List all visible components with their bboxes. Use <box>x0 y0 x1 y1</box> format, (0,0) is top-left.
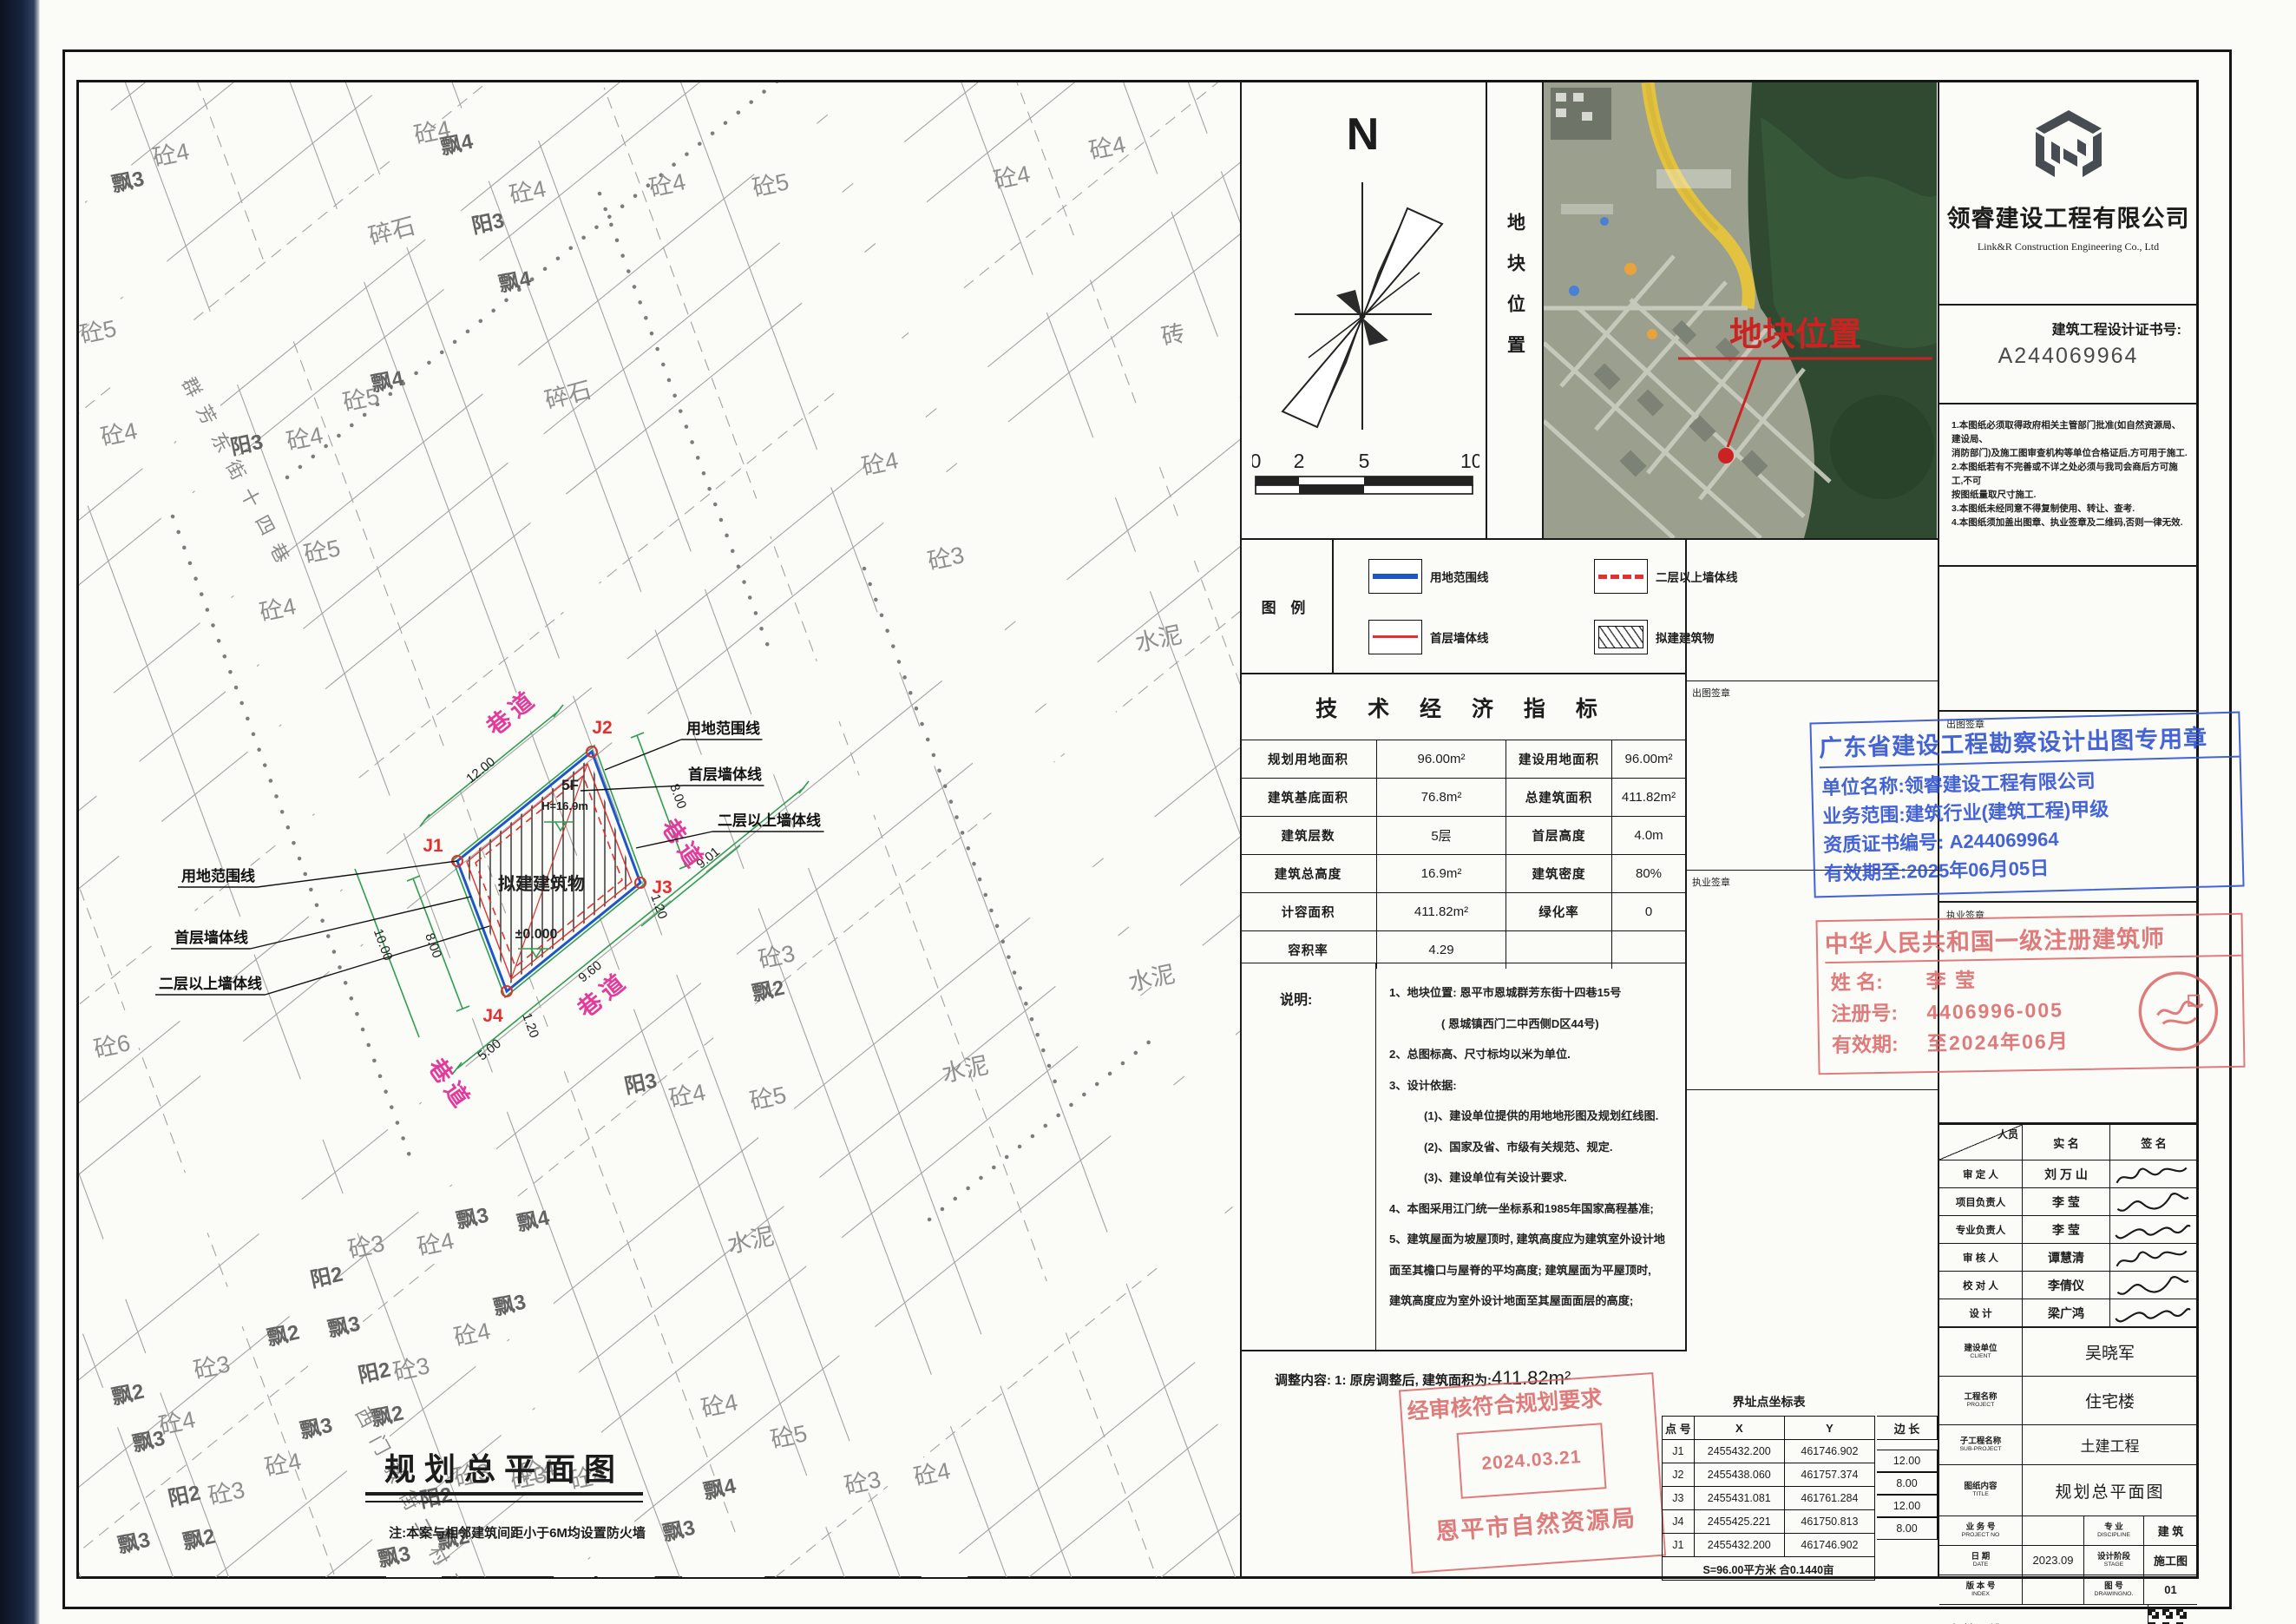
legend-item: 首层墙体线 <box>1368 620 1489 654</box>
callout-label: 二层以上墙体线 <box>718 812 821 829</box>
disclaimer-line: 按图纸量取尺寸施工. <box>1952 488 2188 502</box>
coord-table-title: 界址点坐标表 <box>1662 1393 1876 1410</box>
indicator-value: 411.82m² <box>1612 779 1685 816</box>
coord-footer: S=96.00平方米 合0.1440亩 <box>1663 1557 1874 1580</box>
indicator-label: 建筑基底面积 <box>1240 779 1377 816</box>
indicator-value: 96.00m² <box>1377 740 1506 778</box>
proposed-building-label: 拟建建筑物 <box>498 873 585 894</box>
parcel-label: 飘3 <box>130 1427 167 1456</box>
boundary-point-label: J1 <box>423 836 443 856</box>
coord-cell: 2455432.200 <box>1695 1440 1785 1463</box>
coord-header: X <box>1695 1417 1785 1439</box>
personnel-role: 审 核 人 <box>1939 1244 2023 1271</box>
parcel-label: 飘4 <box>515 1206 552 1235</box>
parcel-label: 砼4 <box>699 1389 739 1422</box>
legend-title: 图 例 <box>1240 540 1334 673</box>
dimension-label: 5.00 <box>475 1036 503 1064</box>
parcel-label: 砼4 <box>646 168 687 201</box>
callout-label: 二层以上墙体线 <box>159 975 262 992</box>
parcel-label: 飘3 <box>298 1414 334 1443</box>
divider-map-middle <box>1240 80 1242 1579</box>
indicator-label: 绿化率 <box>1506 893 1612 930</box>
edge-length-cell: 12.00 <box>1877 1450 1938 1472</box>
coord-header: 点 号 <box>1663 1417 1695 1439</box>
legend: 图 例 用地范围线二层以上墙体线首层墙体线拟建建筑物 <box>1240 538 1685 674</box>
parcel-label: 阳2 <box>166 1482 202 1511</box>
parcel-label: 砼4 <box>1086 131 1127 164</box>
practice-seal-cell-label: 执业签章 <box>1692 875 1730 889</box>
indicators-table: 规划用地面积96.00m²建设用地面积96.00m²建筑基底面积76.8m²总建… <box>1240 740 1685 963</box>
callout-label: 首层墙体线 <box>174 929 248 946</box>
signature <box>2110 1299 2197 1326</box>
disclaimer-notes: 1.本图纸必须取得政府相关主管部门批准(如自然资源局、建设局、消防部门)及施工图… <box>1939 404 2197 567</box>
legend-item-label: 首层墙体线 <box>1430 628 1489 646</box>
parcel-label: 飘2 <box>180 1525 217 1555</box>
company-name-en: Link&R Construction Engineering Co., Ltd <box>1939 240 2197 253</box>
parcel-label: 砼4 <box>666 1079 707 1112</box>
map-title-text: 规划总平面图 <box>384 1452 624 1487</box>
height-label: H=16.9m <box>541 799 588 812</box>
location-strip: 地块位置 <box>1486 82 1544 538</box>
indicator-value: 80% <box>1612 855 1685 892</box>
svg-text:5: 5 <box>1359 450 1370 472</box>
indicator-label: 建筑层数 <box>1240 817 1377 854</box>
coord-cell: 2455432.200 <box>1695 1534 1785 1556</box>
callout-label: 用地范围线 <box>686 720 760 737</box>
subproject-row: 子工程名称 SUB-PROJECT 土建工程 <box>1939 1424 2197 1464</box>
personnel-name: 刘 万 山 <box>2023 1160 2110 1187</box>
note-line: 1、地块位置: 恩平市恩城群芳东街十四巷15号 <box>1389 984 1682 1002</box>
edge-length-cell: 8.00 <box>1877 1517 1938 1540</box>
indicator-label: 规划用地面积 <box>1240 740 1377 778</box>
indicator-label: 建筑总高度 <box>1240 855 1377 892</box>
note-line: (1)、建设单位提供的用地地形图及规划红线图. <box>1389 1108 1682 1125</box>
aerial-site-label: 地块位置 <box>1729 317 1861 353</box>
plot-seal-cell-label: 出图签章 <box>1692 686 1730 700</box>
certificate-block: 建筑工程设计证书号: A244069964 <box>1939 318 2197 404</box>
coord-cell: J4 <box>1663 1510 1695 1533</box>
parcel-label: 砼4 <box>150 138 191 171</box>
parcel-label: 水泥 <box>940 1052 991 1088</box>
meta-value: 01 <box>2144 1575 2197 1604</box>
north-label: N <box>1240 108 1486 161</box>
svg-text:2: 2 <box>1294 450 1305 472</box>
location-strip-label: 地块位置 <box>1502 213 1528 376</box>
coord-table: 点 号XYJ12455432.200461746.902J22455438.06… <box>1662 1416 1875 1581</box>
red-stamp-value: 至2024年06月 <box>1927 1025 2070 1059</box>
indicator-value: 5层 <box>1377 817 1506 854</box>
cert-number: A244069964 <box>1939 344 2197 369</box>
svg-text:10M: 10M <box>1460 450 1479 472</box>
bottom-band: 调整内容: 1: 原房调整后, 建筑面积为:411.82m² 经审核符合规划要求… <box>1240 1351 1938 1577</box>
callout-label: 用地范围线 <box>181 867 255 884</box>
signature <box>2110 1188 2197 1215</box>
indicator-value: 96.00m² <box>1612 740 1685 778</box>
red-architect-stamp: 中华人民共和国一级注册建筑师 姓 名:李 莹注册号:4406996-005有效期… <box>1815 913 2245 1075</box>
parcel-label: 砼4 <box>991 161 1032 194</box>
boundary-point-label: J2 <box>592 718 612 738</box>
red-stamp-value: 4406996-005 <box>1926 994 2063 1028</box>
architect-seal-icon <box>2136 969 2221 1054</box>
parcel-label: 碎石 <box>542 377 594 414</box>
parcel-label: 砼3 <box>756 940 797 973</box>
coord-cell: J1 <box>1663 1534 1695 1556</box>
note-line: 3、设计依据: <box>1389 1077 1682 1095</box>
indicator-label: 总建筑面积 <box>1506 779 1612 816</box>
parcel-label: 飘4 <box>369 366 406 396</box>
notes-label: 说明: <box>1280 988 1375 1009</box>
parcel-label: 砼4 <box>507 175 548 208</box>
coord-cell: 2455431.081 <box>1695 1487 1785 1509</box>
note-line: 4、本图采用江门统一坐标系和1985年国家高程基准; <box>1389 1200 1682 1218</box>
client-row: 建设单位 CLIENT 吴晓军 <box>1939 1328 2197 1376</box>
coord-cell: 2455425.221 <box>1695 1510 1785 1533</box>
signature <box>2110 1272 2197 1299</box>
drawing-sheet: 砼4飘3砼4飘4砼4阳3飘4碎石砼5飘4砼4阳3碎石砼4砼5砼4砼4砖砼4砼3水… <box>0 0 2296 1624</box>
callout-label: 首层墙体线 <box>688 766 762 783</box>
legend-item: 用地范围线 <box>1368 559 1489 594</box>
note-line: (2)、国家及省、市级有关规范、规定. <box>1389 1139 1682 1156</box>
personnel-role: 设 计 <box>1939 1299 2023 1326</box>
project-row: 工程名称 PROJECT 住宅楼 <box>1939 1376 2197 1424</box>
coord-cell: 2455438.060 <box>1695 1463 1785 1486</box>
map-note-text: 注:本案与相邻建筑间距小于6M均设置防火墙 <box>389 1525 646 1541</box>
red-stamp-value: 李 莹 <box>1925 964 1977 996</box>
edge-length-cell: 8.00 <box>1877 1472 1938 1495</box>
disclaimer-line: 1.本图纸必须取得政府相关主管部门批准(如自然资源局、建设局、 <box>1952 418 2188 446</box>
boundary-point-label: J4 <box>482 1006 503 1026</box>
legend-item-label: 用地范围线 <box>1430 568 1489 585</box>
aerial-site-marker <box>1718 448 1734 464</box>
indicator-label: 建设用地面积 <box>1506 740 1612 778</box>
scan-edge <box>0 0 40 1624</box>
cert-label: 建筑工程设计证书号: <box>1939 318 2181 339</box>
indicator-label: 建筑密度 <box>1506 855 1612 892</box>
note-line: 5、建筑屋面为坡屋顶时, 建筑高度应为建筑室外设计地 <box>1389 1231 1682 1248</box>
indicator-value: 411.82m² <box>1377 893 1506 930</box>
personnel-name: 李倩仪 <box>2023 1272 2110 1299</box>
svg-text:0: 0 <box>1252 450 1261 472</box>
signature <box>2110 1244 2197 1271</box>
north-box: N 02510M <box>1240 82 1486 538</box>
personnel-name: 谭慧清 <box>2023 1244 2110 1271</box>
compass-rose-icon <box>1280 174 1445 434</box>
drawing-meta-rows: 业 务 号PROJECT NO专 业DISCIPLINE建 筑日 期DATE20… <box>1939 1516 2197 1604</box>
meta-value <box>2023 1516 2084 1545</box>
coord-cell: 461761.284 <box>1785 1487 1874 1509</box>
personnel-role: 项目负责人 <box>1939 1188 2023 1215</box>
site-plan-map: 砼4飘3砼4飘4砼4阳3飘4碎石砼5飘4砼4阳3碎石砼4砼5砼4砼4砖砼4砼3水… <box>79 82 1240 1577</box>
signature <box>2110 1160 2197 1187</box>
personnel-name: 李 莹 <box>2023 1188 2110 1215</box>
parcel-label: 砼5 <box>768 1420 809 1453</box>
coord-cell: J1 <box>1663 1440 1695 1463</box>
edge-length-column: 边 长12.008.0012.008.00 <box>1877 1416 1938 1440</box>
floors-label: 5F <box>561 777 579 793</box>
company-name: 领睿建设工程有限公司 <box>1939 200 2197 233</box>
parcel-label: 砼5 <box>301 535 342 568</box>
notes-section: 说明: 1、地块位置: 恩平市恩城群芳东街十四巷15号( 恩城镇西门二中西侧D区… <box>1240 963 1685 1351</box>
parcel-label: 阳3 <box>622 1069 659 1099</box>
note-line: (3)、建设单位有关设计要求. <box>1389 1169 1682 1187</box>
parcel-label: 飘2 <box>265 1321 301 1351</box>
meta-value: 施工图 <box>2144 1546 2197 1575</box>
note-line: 建筑高度应为室外设计地面至其屋面面层的高度; <box>1389 1292 1682 1310</box>
qr-row: 归档二维码: <box>1939 1604 2197 1624</box>
parcel-label: 阳3 <box>469 209 506 239</box>
indicator-value: 0 <box>1612 893 1685 930</box>
indicators-title: 技 术 经 济 指 标 <box>1240 674 1685 740</box>
indicator-value: 4.0m <box>1612 817 1685 854</box>
coord-cell: 461750.813 <box>1785 1510 1874 1533</box>
coord-header: Y <box>1785 1417 1874 1439</box>
parcel-label: 水泥 <box>725 1223 777 1259</box>
blue-company-stamp: 广东省建设工程勘察设计出图专用章 单位名称:领睿建设工程有限公司业务范围:建筑行… <box>1809 712 2244 898</box>
indicator-value: 76.8m² <box>1377 779 1506 816</box>
note-line: 2、总图标高、尺寸标均以米为单位. <box>1389 1046 1682 1063</box>
project-name: 住宅楼 <box>2023 1377 2197 1424</box>
coord-cell: 461746.902 <box>1785 1440 1874 1463</box>
parcel-label: 砼3 <box>206 1476 246 1509</box>
indicator-label: 计容面积 <box>1240 893 1377 930</box>
parcel-label: 砼4 <box>284 422 325 455</box>
archive-qr-code <box>2148 1608 2190 1624</box>
approval-date: 2024.03.21 <box>1457 1423 1607 1499</box>
indicator-value: 16.9m² <box>1377 855 1506 892</box>
drawing-title: 规划总平面图 <box>2023 1465 2197 1516</box>
personnel-table: 人员实 名签 名审 定 人刘 万 山项目负责人李 莹专业负责人李 莹审 核 人谭… <box>1939 1124 2197 1328</box>
parcel-label: 飘3 <box>660 1516 697 1546</box>
client-name: 吴晓军 <box>2023 1328 2197 1376</box>
parcel-label: 飘4 <box>701 1474 738 1503</box>
empty-cell <box>1939 567 2197 712</box>
personnel-role: 专业负责人 <box>1939 1216 2023 1243</box>
level-label: ±0.000 <box>515 927 558 942</box>
approval-agency: 恩平市自然资源局 <box>1409 1497 1663 1548</box>
note-line: 面至其檐口与屋脊的平均高度; 建筑屋面为平屋顶时, <box>1389 1262 1682 1279</box>
signature <box>2110 1216 2197 1243</box>
parcel-label: 飘3 <box>115 1529 152 1558</box>
meta-value: 建 筑 <box>2144 1516 2197 1545</box>
coord-cell: 461746.902 <box>1785 1534 1874 1556</box>
company-logo-icon <box>2029 107 2109 187</box>
personnel-name: 李 莹 <box>2023 1216 2110 1243</box>
parcel-label: 飘2 <box>750 976 786 1006</box>
subproject-name: 土建工程 <box>2023 1425 2197 1464</box>
coord-cell: 461757.374 <box>1785 1463 1874 1486</box>
indicator-label: 首层高度 <box>1506 817 1612 854</box>
meta-value: 2023.09 <box>2023 1546 2084 1575</box>
meta-value <box>2023 1575 2084 1604</box>
coord-cell: J2 <box>1663 1463 1695 1486</box>
personnel-role: 校 对 人 <box>1939 1272 2023 1299</box>
disclaimer-line: 3.本图纸未经同意不得复制使用、转让、查考. <box>1952 502 2188 516</box>
parcel-label: 飘4 <box>496 266 534 296</box>
personnel-name: 梁广鸿 <box>2023 1299 2110 1326</box>
edge-length-cell: 12.00 <box>1877 1495 1938 1517</box>
disclaimer-line: 消防部门)及施工图审查机构等单位合格证后,方可用于施工. <box>1952 446 2188 460</box>
note-line: ( 恩城镇西门二中西侧D区44号) <box>1389 1016 1682 1033</box>
aerial-photo: 地块位置 <box>1544 82 1937 538</box>
disclaimer-line: 2.本图纸若有不完善或不详之处必须与我司会商后方可施工,不可 <box>1952 460 2188 488</box>
parcel-label: 砼3 <box>390 1352 431 1385</box>
parcel-label: 砖 <box>1159 320 1188 351</box>
approval-stamp: 经审核符合规划要求 2024.03.21 恩平市自然资源局 <box>1399 1372 1666 1574</box>
disclaimer-line: 4.本图纸须加盖出图章、执业签章及二维码,否则一律无效. <box>1952 516 2188 529</box>
scale-bar: 02510M <box>1252 447 1479 508</box>
drawing-title-row: 图纸内容 TITLE 规划总平面图 <box>1939 1464 2197 1516</box>
company-block: 领睿建设工程有限公司 Link&R Construction Engineeri… <box>1939 82 2197 306</box>
dimension-label: 1.20 <box>519 1011 541 1040</box>
personnel-role: 审 定 人 <box>1939 1160 2023 1187</box>
coord-cell: J3 <box>1663 1487 1695 1509</box>
